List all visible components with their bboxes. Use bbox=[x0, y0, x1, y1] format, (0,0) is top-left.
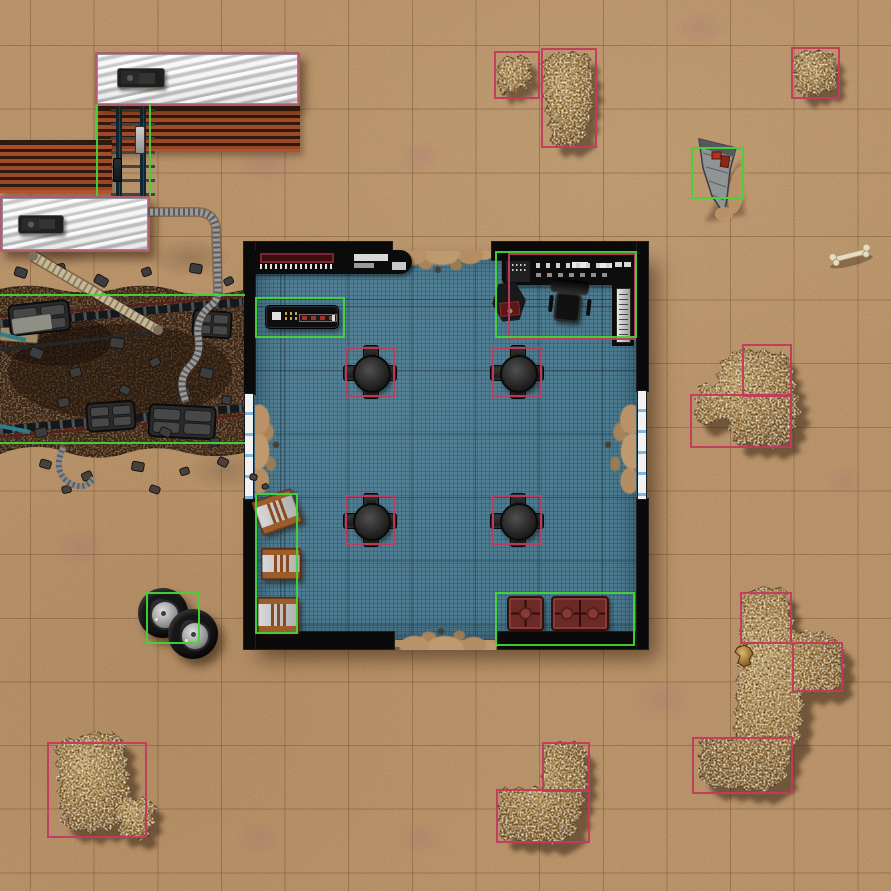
wall-right-upper bbox=[636, 241, 649, 392]
wall-left-lower bbox=[243, 498, 256, 650]
rock-outcrop-top-big[interactable] bbox=[541, 51, 604, 158]
window-strip-left[interactable] bbox=[244, 393, 254, 500]
office-chair[interactable] bbox=[546, 278, 595, 330]
rails-vertical[interactable] bbox=[111, 98, 155, 202]
sand-spill-right bbox=[596, 396, 636, 502]
table-with-chairs-se[interactable] bbox=[490, 493, 544, 547]
wall-console-panel[interactable] bbox=[252, 250, 412, 274]
table-top bbox=[353, 355, 391, 393]
tire-2[interactable] bbox=[168, 609, 218, 659]
trackbed-west[interactable] bbox=[0, 140, 112, 193]
crate-3[interactable] bbox=[257, 597, 299, 634]
rock-outcrop-bottom-left[interactable] bbox=[54, 731, 165, 850]
console-table[interactable] bbox=[265, 305, 339, 329]
chair-armrest bbox=[586, 299, 592, 316]
red-cargo bbox=[712, 152, 721, 159]
rail-car-west-hatch bbox=[18, 215, 64, 234]
window-strip-right[interactable] bbox=[637, 390, 647, 500]
crashed-wing-debris[interactable] bbox=[699, 139, 749, 222]
table-top bbox=[353, 503, 391, 541]
rock-outcrop-top-small[interactable] bbox=[496, 55, 541, 106]
rock-outcrop-bottom-right[interactable] bbox=[698, 586, 856, 805]
battle-map-canvas[interactable] bbox=[0, 0, 891, 891]
sofa-double[interactable] bbox=[551, 596, 609, 631]
rock-outcrop-bottom-center[interactable] bbox=[497, 741, 598, 856]
dig-site-trench[interactable] bbox=[0, 263, 269, 494]
table-with-chairs-sw[interactable] bbox=[343, 493, 397, 547]
server-panel[interactable] bbox=[616, 288, 631, 343]
sand-spill-bottom bbox=[394, 624, 496, 650]
tire-hub bbox=[180, 621, 210, 651]
rail-coupler bbox=[135, 126, 145, 154]
table-with-chairs-ne[interactable] bbox=[490, 345, 544, 399]
rail-car-north-hatch bbox=[117, 68, 165, 88]
table-top bbox=[500, 503, 538, 541]
sofa-single[interactable] bbox=[507, 596, 544, 631]
chair-seat bbox=[553, 291, 582, 323]
rock-outcrop-top-right[interactable] bbox=[792, 50, 847, 109]
wall-right-lower bbox=[636, 498, 649, 650]
bone[interactable] bbox=[827, 243, 874, 271]
sand-spill-left bbox=[255, 396, 285, 502]
chair-armrest bbox=[548, 295, 554, 312]
wall-bottom-right bbox=[497, 631, 649, 650]
crate-2[interactable] bbox=[261, 548, 301, 580]
rock-outcrop-right[interactable] bbox=[694, 348, 811, 460]
table-top bbox=[500, 355, 538, 393]
red-cargo bbox=[720, 155, 729, 167]
rail-coupler-dark bbox=[113, 158, 122, 182]
table-with-chairs-nw[interactable] bbox=[343, 345, 397, 399]
